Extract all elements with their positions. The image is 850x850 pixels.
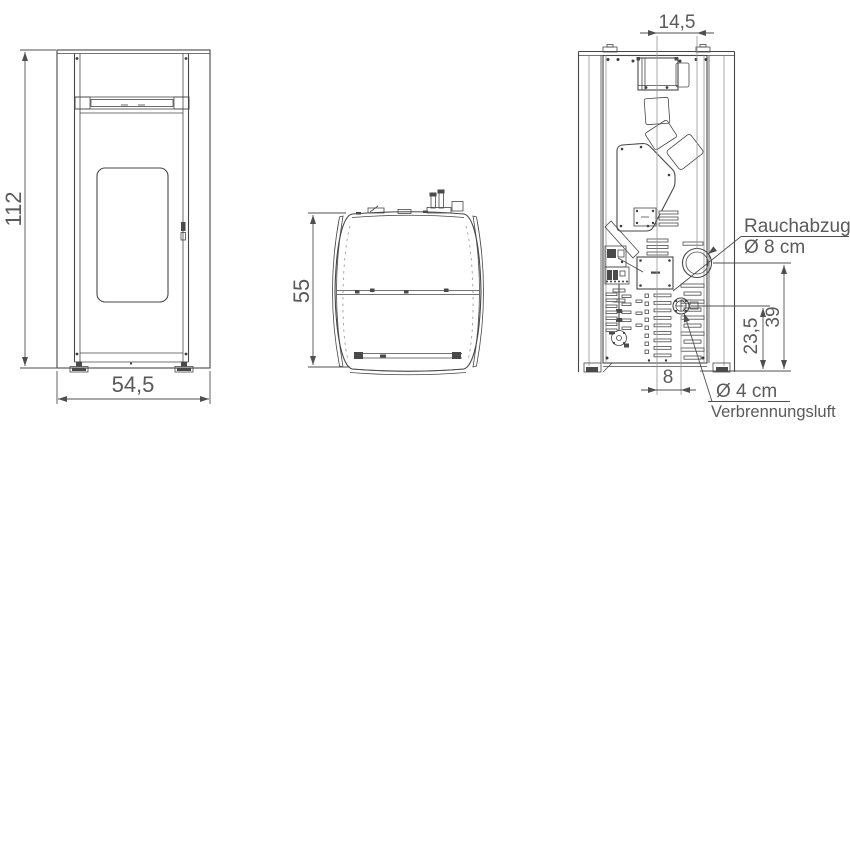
front-foot-left (70, 362, 88, 373)
door-window (97, 168, 168, 302)
flue-height-dimension: 39 (763, 306, 784, 327)
side-panel-left-edge (333, 216, 344, 367)
flue-diameter-label: Ø 8 cm (744, 237, 805, 258)
side-panel-right-edge (473, 216, 484, 367)
auger-motor (609, 331, 629, 348)
flue-offset-dimension: 14,5 (659, 12, 696, 33)
air-diameter-label: Ø 4 cm (716, 381, 777, 402)
front-height-dimension: 112 (1, 191, 26, 226)
air-offset-dimension: 8 (663, 367, 674, 388)
technical-drawing-page: 112 54,5 (0, 0, 850, 850)
rear-view (579, 45, 735, 373)
vent-slots (606, 211, 704, 359)
stove-door (80, 113, 186, 353)
flue-label: Rauchabzug (744, 216, 850, 237)
front-view (57, 50, 210, 372)
front-width-dimension: 54,5 (112, 372, 155, 397)
air-height-dimension: 23,5 (741, 318, 762, 355)
top-handle-slot (75, 97, 189, 109)
side-dimensions: 55 (289, 213, 350, 367)
side-view (333, 190, 484, 375)
air-label: Verbrennungsluft (711, 403, 836, 421)
front-foot-right (175, 362, 193, 373)
front-dimensions: 112 54,5 (1, 50, 210, 404)
rear-foot-left (584, 363, 612, 372)
side-depth-dimension: 55 (289, 279, 314, 303)
rear-dimensions: 14,5 Rauchabzug Ø 8 cm 39 23,5 8 Ø 4 cm … (640, 12, 850, 421)
stove-dimension-drawing: 112 54,5 (0, 0, 850, 850)
top-fittings (356, 190, 463, 215)
cover-plate-3 (666, 133, 704, 170)
